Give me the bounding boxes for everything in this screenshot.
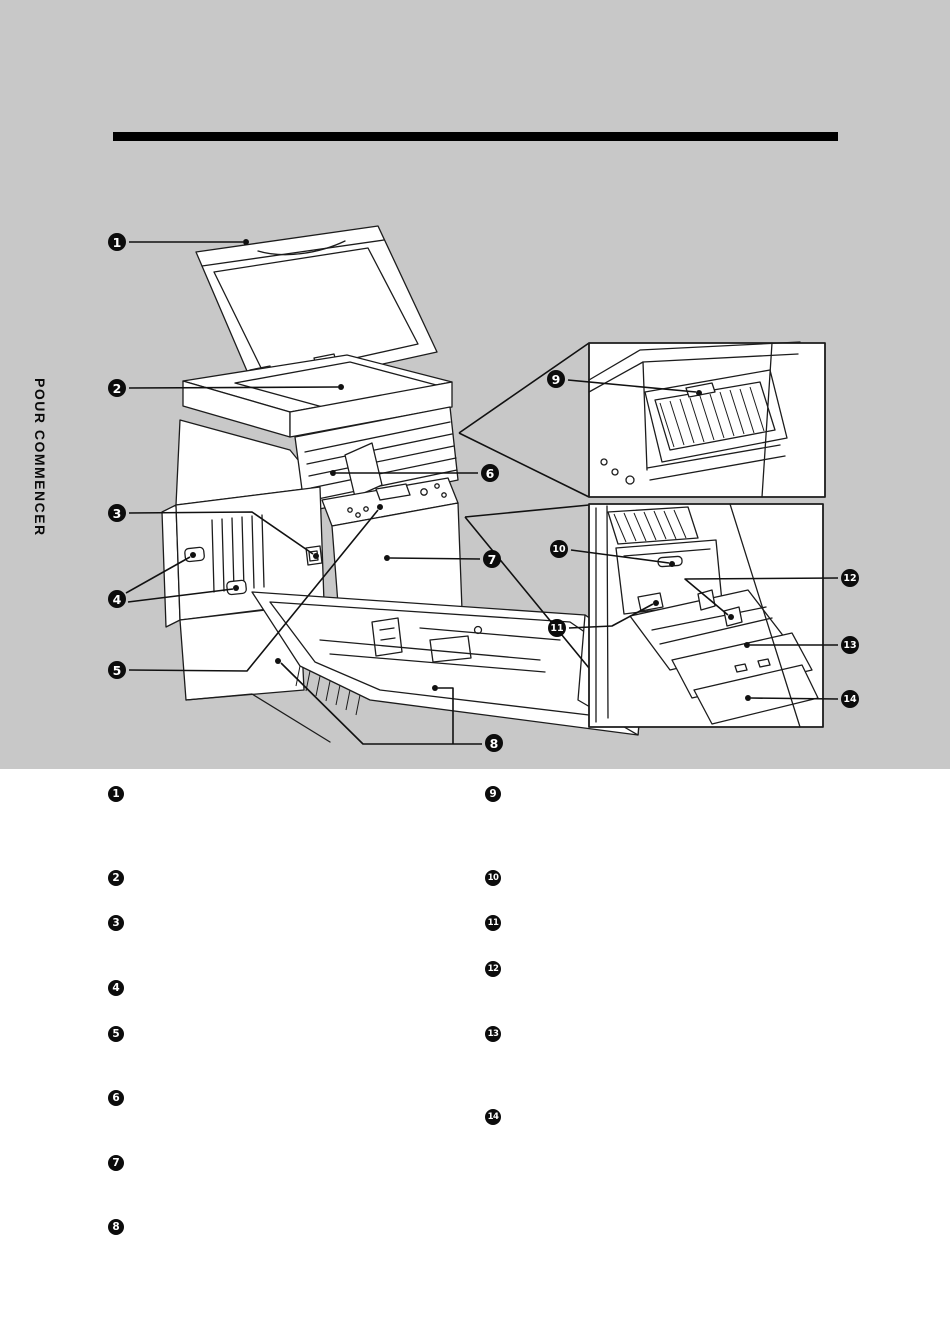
legend-item-2: 2 xyxy=(108,870,124,886)
parts-legend: 1234567891011121314 xyxy=(0,0,950,1344)
legend-item-10: 10 xyxy=(485,870,501,886)
legend-item-7: 7 xyxy=(108,1155,124,1171)
legend-item-14: 14 xyxy=(485,1109,501,1125)
legend-item-5: 5 xyxy=(108,1026,124,1042)
legend-item-1: 1 xyxy=(108,786,124,802)
legend-item-8: 8 xyxy=(108,1219,124,1235)
manual-page: POUR COMMENCER xyxy=(0,0,950,1344)
legend-item-12: 12 xyxy=(485,961,501,977)
legend-item-3: 3 xyxy=(108,915,124,931)
legend-item-9: 9 xyxy=(485,786,501,802)
legend-item-13: 13 xyxy=(485,1026,501,1042)
legend-item-11: 11 xyxy=(485,915,501,931)
legend-item-4: 4 xyxy=(108,980,124,996)
legend-item-6: 6 xyxy=(108,1090,124,1106)
